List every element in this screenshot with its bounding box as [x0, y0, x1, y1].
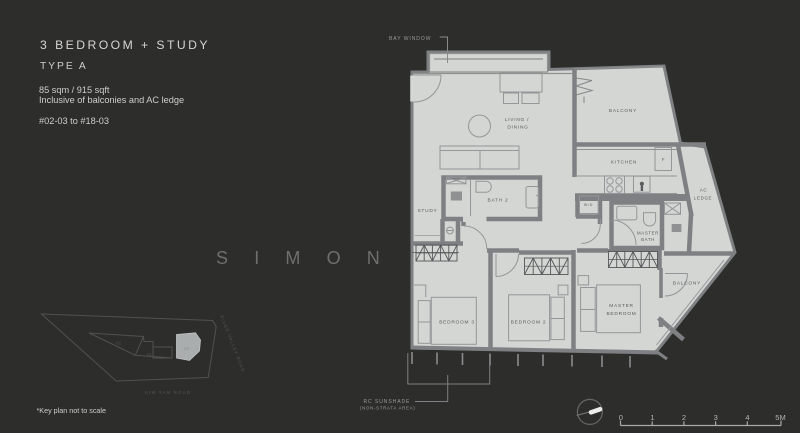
- svg-text:DINING: DINING: [507, 125, 528, 131]
- svg-text:LIVING /: LIVING /: [505, 117, 529, 123]
- svg-text:BALCONY: BALCONY: [673, 281, 701, 287]
- svg-text:F: F: [662, 157, 665, 162]
- svg-text:BATH: BATH: [641, 237, 655, 242]
- svg-text:MASTER: MASTER: [609, 303, 634, 309]
- svg-text:02: 02: [116, 341, 122, 346]
- svg-text:3: 3: [714, 413, 718, 422]
- svg-text:BALCONY: BALCONY: [609, 108, 637, 114]
- svg-text:KITCHEN: KITCHEN: [611, 160, 637, 166]
- svg-text:MASTER: MASTER: [637, 231, 659, 236]
- svg-text:KIM YAM ROAD: KIM YAM ROAD: [145, 390, 191, 395]
- svg-text:4: 4: [745, 413, 749, 422]
- svg-text:03: 03: [184, 346, 190, 351]
- svg-text:RC SUNSHADE: RC SUNSHADE: [364, 399, 411, 405]
- svg-text:1: 1: [650, 413, 654, 422]
- svg-text:BEDROOM 3: BEDROOM 3: [439, 320, 475, 326]
- svg-text:LEDGE: LEDGE: [694, 196, 712, 201]
- svg-text:BEDROOM: BEDROOM: [606, 311, 636, 317]
- svg-text:W/D: W/D: [584, 203, 593, 207]
- svg-text:01: 01: [147, 352, 153, 357]
- svg-text:BEDROOM 2: BEDROOM 2: [511, 320, 547, 326]
- svg-text:2: 2: [682, 413, 686, 422]
- svg-text:AC: AC: [700, 188, 708, 193]
- svg-text:(NON-STRATA AREA): (NON-STRATA AREA): [360, 406, 415, 411]
- svg-text:BATH 2: BATH 2: [488, 198, 509, 204]
- svg-text:5M: 5M: [775, 413, 785, 422]
- svg-text:STUDY: STUDY: [417, 208, 437, 214]
- svg-text:BAY WINDOW: BAY WINDOW: [389, 36, 431, 42]
- svg-text:RIVER VALLEY ROAD: RIVER VALLEY ROAD: [219, 315, 246, 373]
- svg-text:0: 0: [619, 413, 623, 422]
